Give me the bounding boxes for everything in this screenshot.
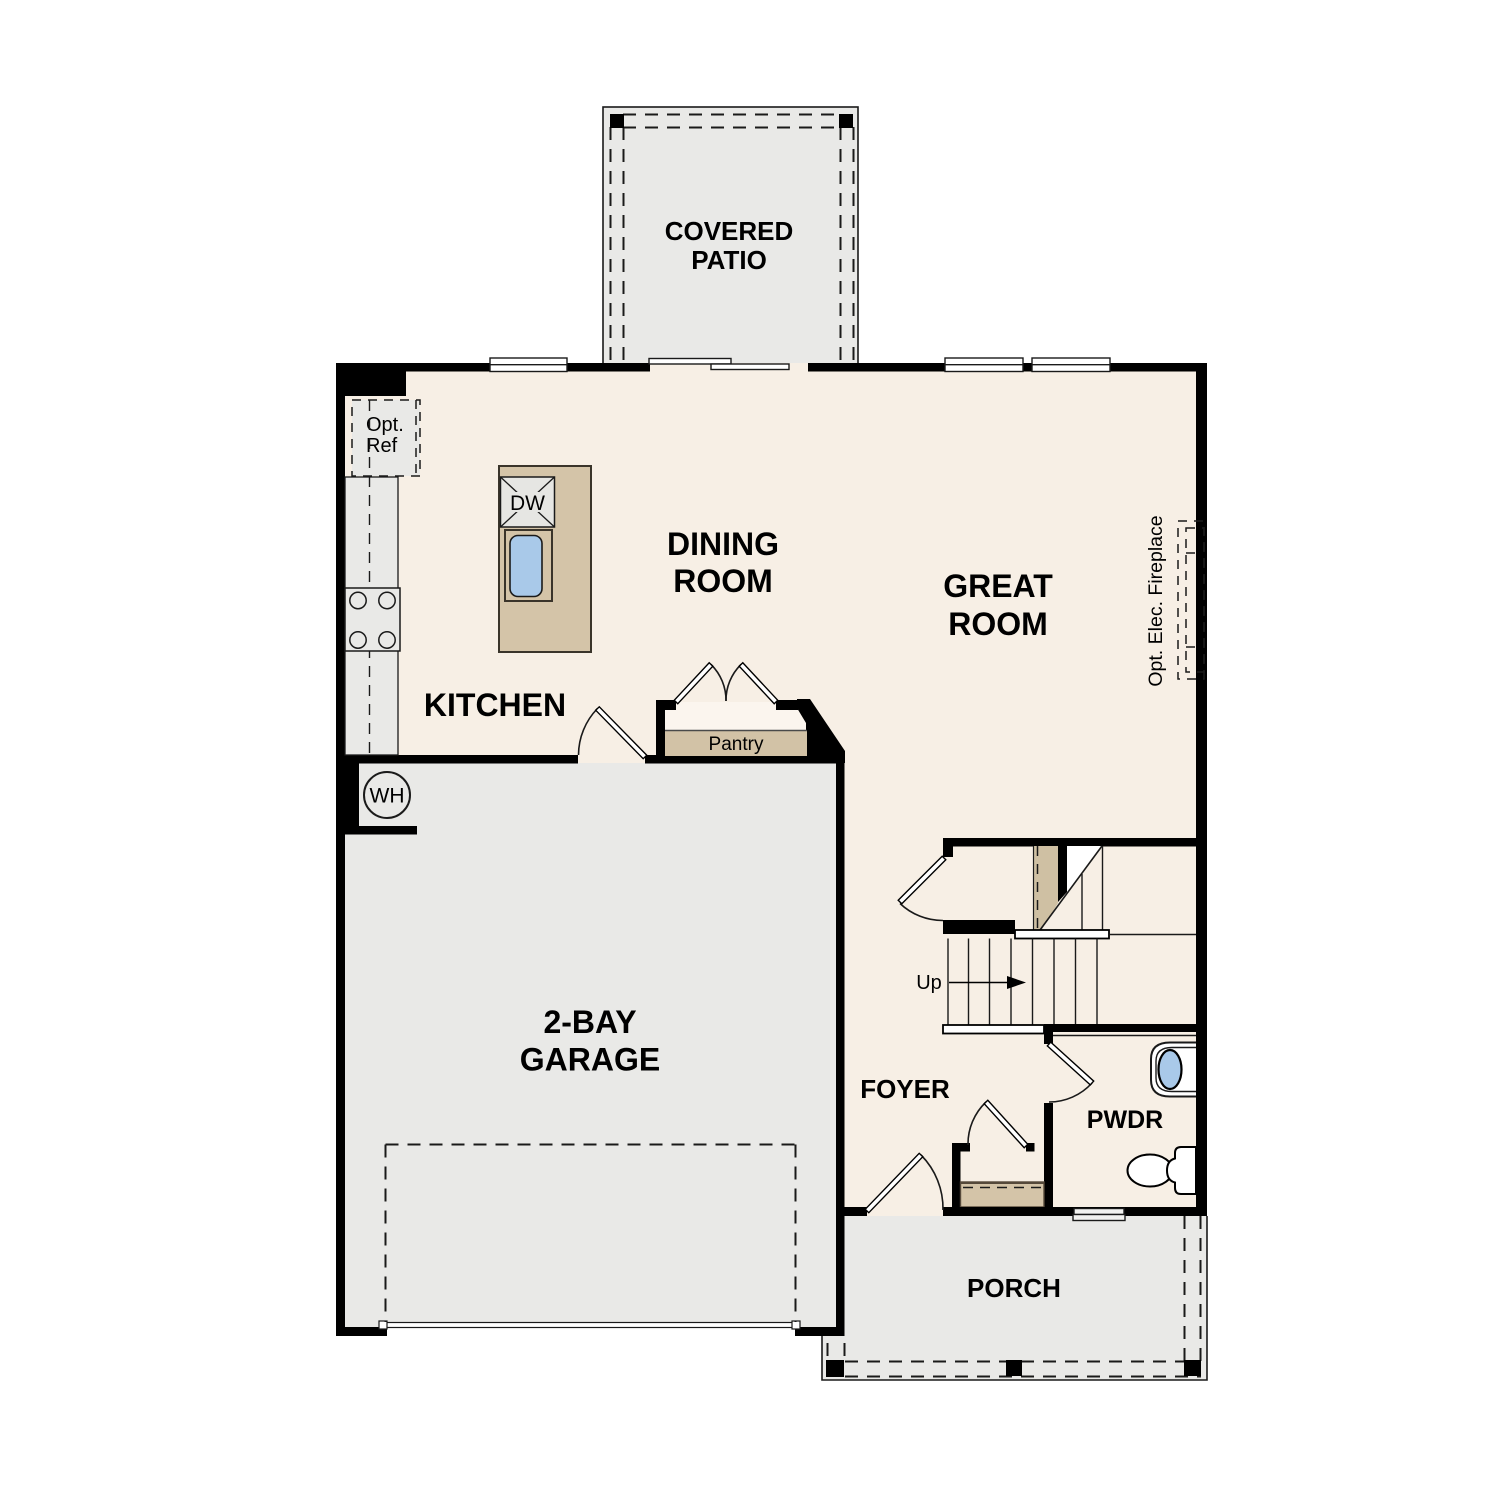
svg-text:Up: Up [916, 972, 942, 994]
svg-text:PWDR: PWDR [1087, 1106, 1163, 1134]
svg-text:Opt.: Opt. [366, 414, 404, 436]
svg-text:GREAT: GREAT [943, 568, 1053, 604]
svg-text:GARAGE: GARAGE [520, 1042, 660, 1078]
svg-text:COVERED: COVERED [665, 216, 794, 246]
svg-text:DINING: DINING [667, 526, 779, 562]
svg-text:PATIO: PATIO [691, 245, 767, 275]
svg-text:PORCH: PORCH [967, 1273, 1061, 1303]
svg-text:DW: DW [510, 492, 545, 515]
svg-text:ROOM: ROOM [948, 606, 1048, 642]
svg-text:WH: WH [370, 785, 405, 808]
svg-text:Ref: Ref [366, 435, 398, 457]
svg-text:FOYER: FOYER [860, 1074, 950, 1104]
svg-text:Pantry: Pantry [709, 734, 764, 755]
svg-text:2-BAY: 2-BAY [543, 1004, 636, 1040]
svg-text:ROOM: ROOM [673, 563, 773, 599]
svg-text:KITCHEN: KITCHEN [424, 687, 566, 723]
svg-text:Opt. Elec. Fireplace: Opt. Elec. Fireplace [1145, 515, 1167, 686]
